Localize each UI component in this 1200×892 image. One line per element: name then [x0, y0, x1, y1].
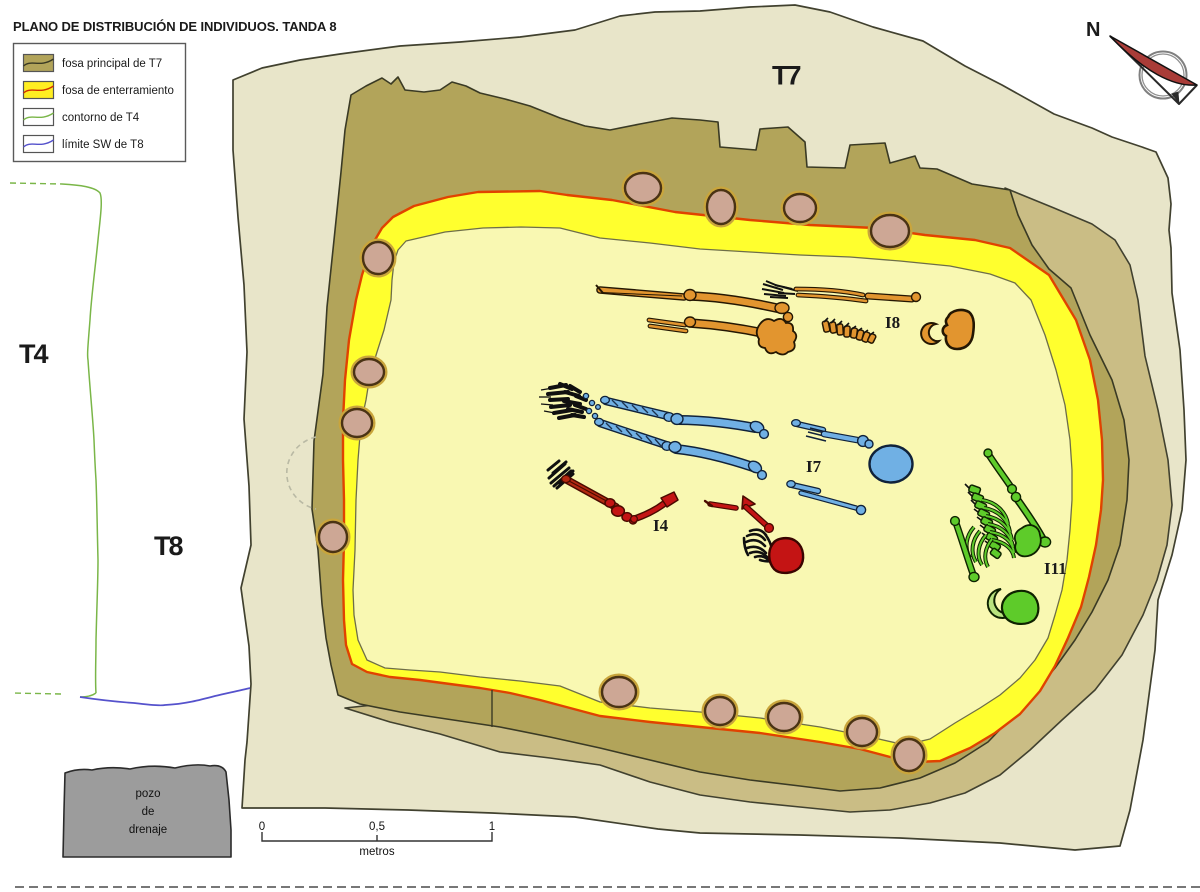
svg-text:T8: T8 — [154, 531, 183, 561]
svg-text:pozo: pozo — [136, 788, 161, 800]
svg-text:contorno de T4: contorno de T4 — [62, 112, 140, 124]
svg-text:límite SW de T8: límite SW de T8 — [62, 139, 144, 151]
svg-text:T4: T4 — [19, 339, 48, 369]
svg-text:I8: I8 — [885, 313, 900, 332]
svg-text:de: de — [142, 806, 155, 818]
svg-text:T7: T7 — [772, 61, 800, 91]
svg-text:0,5: 0,5 — [369, 821, 385, 833]
svg-text:I7: I7 — [806, 457, 822, 476]
svg-text:PLANO DE DISTRIBUCIÓN DE INDIV: PLANO DE DISTRIBUCIÓN DE INDIVIDUOS. TAN… — [13, 19, 337, 34]
svg-text:N: N — [1086, 19, 1100, 41]
svg-text:1: 1 — [489, 821, 495, 833]
svg-text:fosa principal de T7: fosa principal de T7 — [62, 58, 162, 70]
svg-text:metros: metros — [359, 846, 394, 858]
svg-text:I4: I4 — [653, 516, 669, 535]
svg-text:I11: I11 — [1044, 559, 1067, 578]
svg-text:fosa de enterramiento: fosa de enterramiento — [62, 85, 174, 97]
svg-text:0: 0 — [259, 821, 265, 833]
svg-text:drenaje: drenaje — [129, 824, 167, 836]
